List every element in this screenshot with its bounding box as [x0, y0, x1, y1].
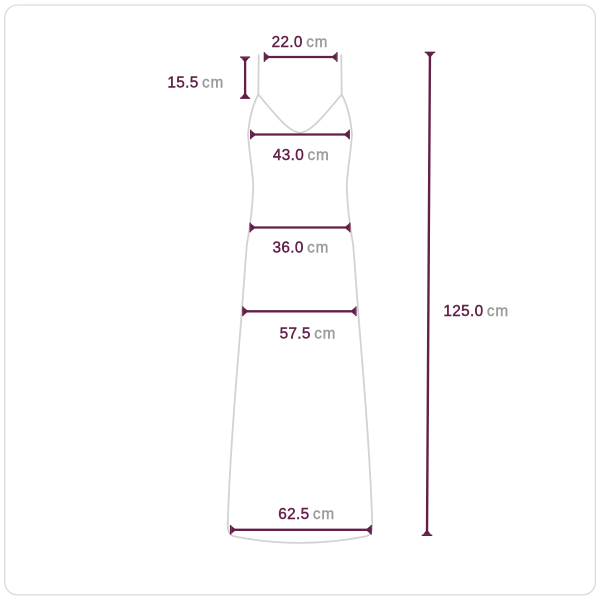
- svg-text:15.5 cm: 15.5 cm: [167, 75, 224, 92]
- svg-text:36.0 cm: 36.0 cm: [273, 240, 330, 257]
- svg-text:62.5 cm: 62.5 cm: [278, 506, 335, 523]
- svg-text:57.5 cm: 57.5 cm: [280, 326, 337, 343]
- svg-text:22.0 cm: 22.0 cm: [272, 34, 329, 51]
- svg-text:43.0 cm: 43.0 cm: [273, 147, 330, 164]
- svg-text:125.0 cm: 125.0 cm: [443, 303, 508, 320]
